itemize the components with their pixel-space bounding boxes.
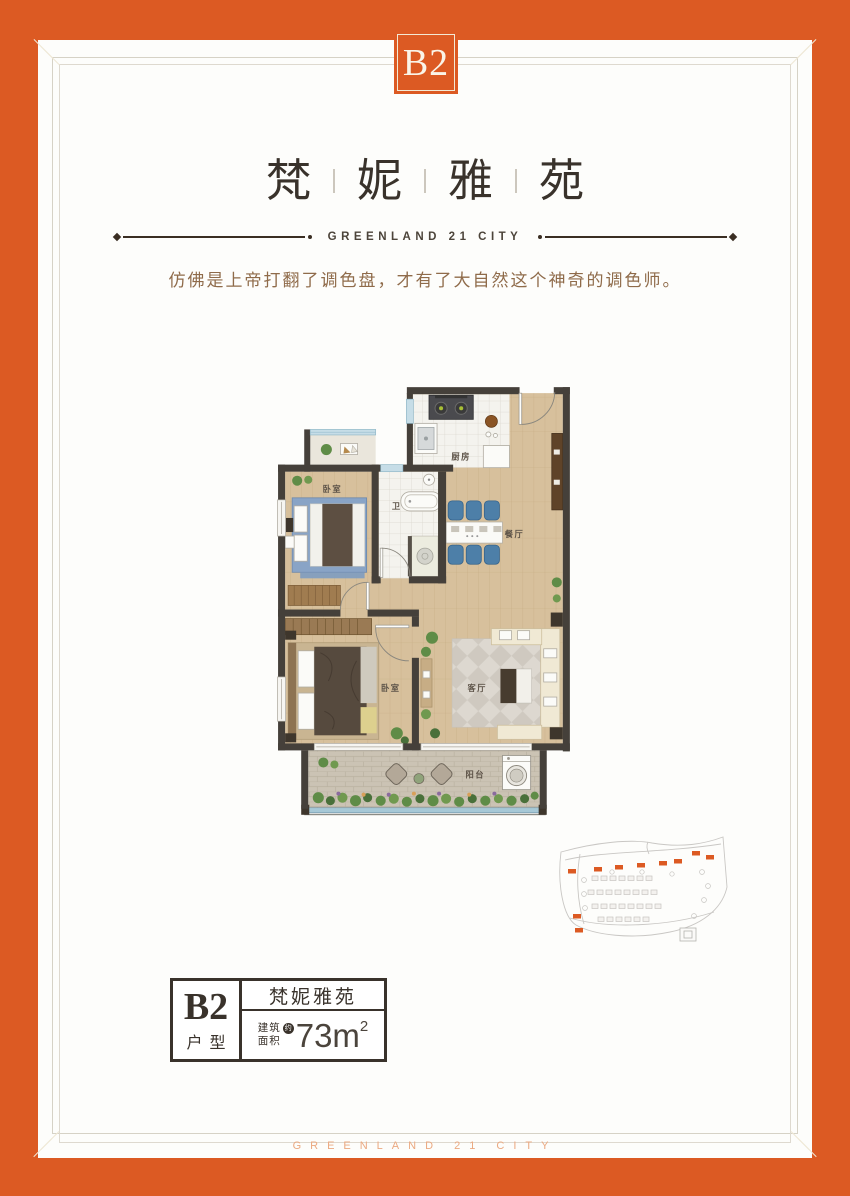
cup-icon [493, 433, 497, 437]
divider-diamond [112, 233, 120, 241]
cup-icon [486, 432, 491, 437]
unit-type-label: 户型 [179, 1029, 232, 1053]
stove-icon [429, 395, 473, 419]
kitchen-cabinet [483, 446, 509, 468]
site-plan-buildings [588, 876, 661, 922]
tagline: 仿佛是上帝打翻了调色盘，才有了大自然这个神奇的调色师。 [0, 266, 850, 291]
kitchen-sink-icon [415, 423, 437, 453]
plant-icon [552, 577, 562, 587]
plant-icon [391, 727, 403, 739]
dining-table [446, 522, 502, 543]
plant-icon [292, 476, 302, 486]
approx-badge: 约 [283, 1023, 294, 1034]
unit-label: B2 [184, 988, 228, 1026]
balcony-railing [304, 814, 545, 815]
title-separator [333, 169, 335, 193]
side-table [550, 727, 563, 739]
plant-icon [421, 647, 431, 657]
divider-dot [538, 235, 542, 239]
info-box-detail-cell: 梵妮雅苑 建筑 面积 约 73m 2 [242, 981, 384, 1059]
bath-sink-icon [428, 479, 430, 481]
bathtub-icon [401, 492, 441, 511]
bedroom1-bed [292, 498, 366, 579]
info-box-unit-cell: B2 户型 [173, 981, 242, 1059]
room-label-living: 客厅 [467, 683, 488, 693]
divider-diamond [729, 233, 737, 241]
floor-plan: 厨房 卫 卧室 餐厅 卧室 客厅 阳台 [268, 378, 590, 833]
bedroom2-wardrobe [285, 619, 372, 635]
title-char: 苑 [539, 158, 584, 203]
unit-badge: B2 [394, 31, 458, 94]
area-exponent: 2 [360, 1018, 368, 1035]
plant-icon [553, 594, 561, 602]
divider-dot [308, 235, 312, 239]
plant-icon [304, 476, 312, 484]
plant-icon [321, 444, 332, 455]
room-label-kitchen: 厨房 [451, 452, 471, 462]
plant-icon [430, 728, 440, 738]
site-plan-marker [680, 928, 696, 941]
divider-line [545, 236, 727, 237]
title-separator [424, 169, 426, 193]
brand-divider: GREENLAND 21 CITY [0, 231, 850, 243]
info-box: B2 户型 梵妮雅苑 建筑 面积 约 73m 2 [170, 978, 387, 1062]
basket-icon [485, 415, 497, 427]
bedroom2-nightstand [285, 631, 296, 640]
site-plan [552, 832, 734, 960]
plant-icon [426, 632, 438, 644]
footer-watermark: GREENLAND 21 CITY [0, 1140, 850, 1152]
room-label-balcony: 阳台 [466, 770, 486, 780]
title-separator [515, 169, 517, 193]
area-value: 73m [296, 1019, 360, 1052]
room-label-bedroom1: 卧室 [323, 484, 343, 494]
room-label-dining: 餐厅 [504, 529, 525, 539]
divider-line [123, 236, 305, 237]
bedroom2-bed [288, 643, 379, 740]
room-label-bath: 卫 [392, 502, 402, 511]
title-char: 雅 [448, 158, 493, 203]
title-char: 妮 [357, 158, 402, 203]
area-row: 建筑 面积 约 73m 2 [242, 1011, 384, 1059]
brand-text: GREENLAND 21 CITY [328, 231, 523, 243]
room-label-bedroom2: 卧室 [381, 683, 401, 693]
unit-badge-label: B2 [394, 31, 458, 94]
washing-machine-icon [502, 755, 530, 789]
project-title: 梵 妮 雅 苑 [0, 158, 850, 203]
entry-cabinet [552, 433, 563, 509]
area-label: 建筑 面积 [258, 1022, 281, 1048]
plant-icon [421, 709, 431, 719]
bedroom1-dresser [288, 585, 340, 605]
side-table [551, 613, 563, 627]
bedroom1-basket [285, 536, 294, 548]
coffee-table [500, 669, 531, 703]
console-table [421, 659, 432, 707]
bedroom1-nightstand [285, 518, 293, 532]
shower-icon [408, 536, 438, 576]
project-name: 梵妮雅苑 [242, 981, 384, 1011]
bedroom2-nightstand [285, 733, 296, 742]
title-char: 梵 [266, 158, 311, 203]
balcony-railing [304, 808, 545, 813]
